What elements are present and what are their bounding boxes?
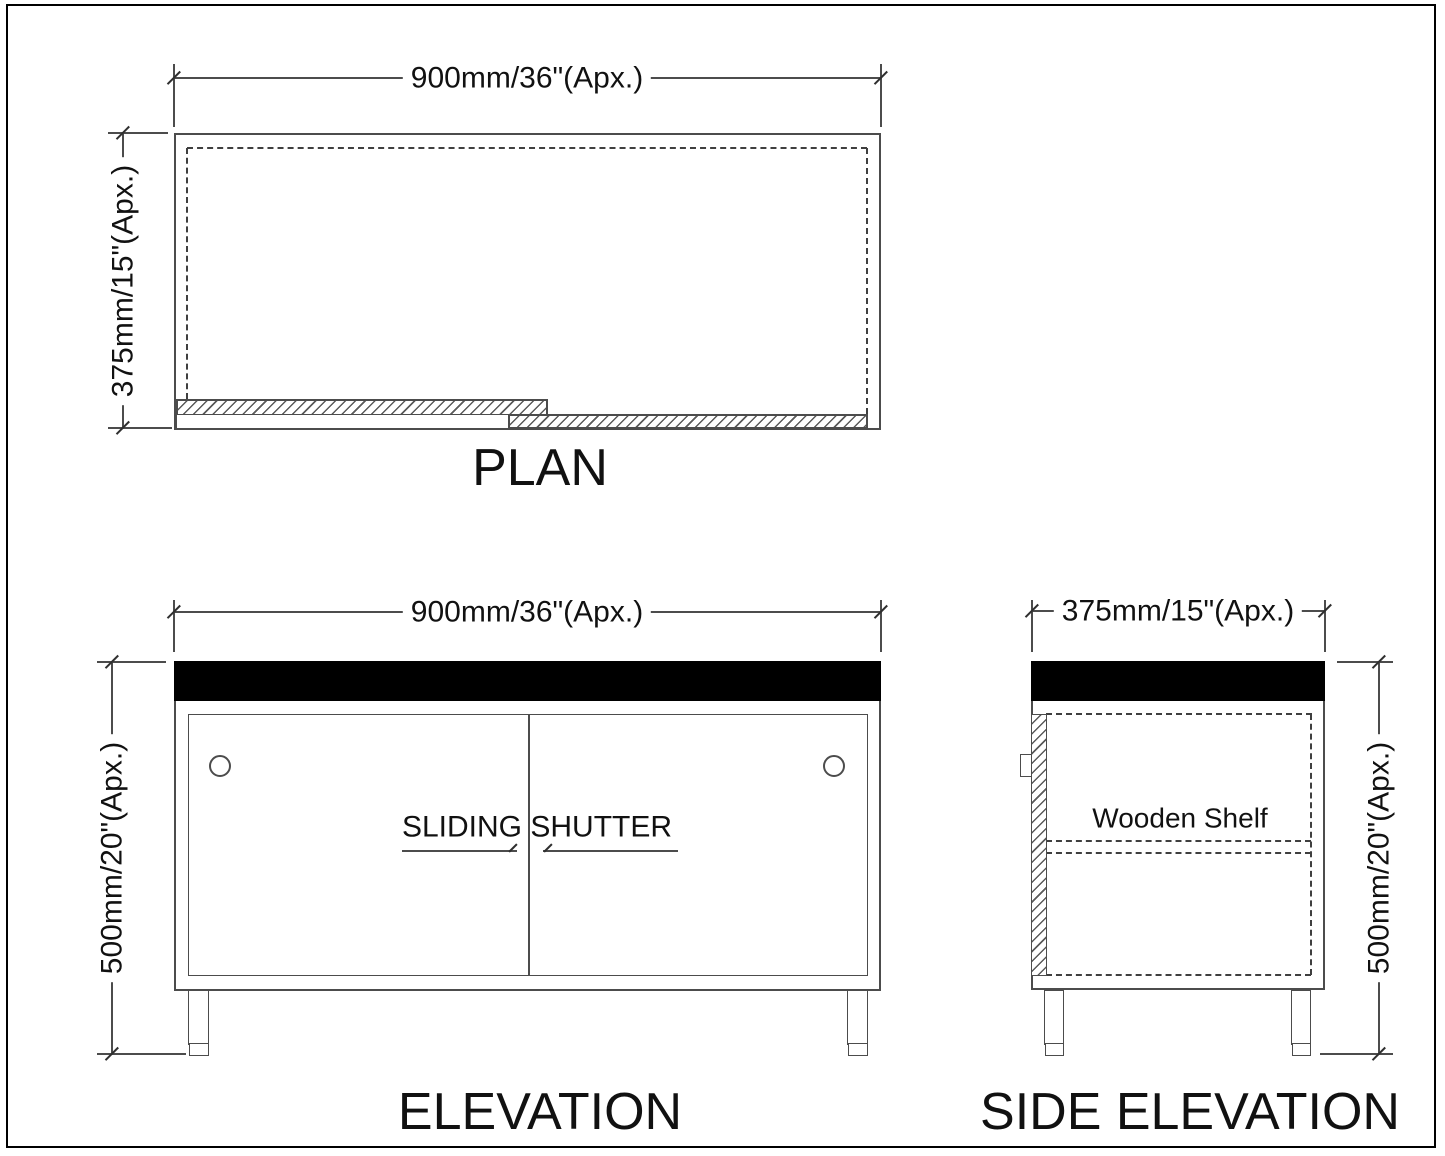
side-countertop-band — [1031, 661, 1325, 701]
plan-view-title: PLAN — [472, 442, 608, 494]
plan-depth-extension-top — [108, 132, 168, 134]
plan-depth-extension-bottom — [108, 427, 172, 429]
side-leg-right — [1291, 990, 1311, 1045]
plan-hidden-line-left — [186, 148, 188, 399]
elevation-view-title: ELEVATION — [398, 1086, 682, 1138]
side-shelf-hidden-line-upper — [1046, 840, 1311, 842]
side-height-extension-top — [1337, 661, 1393, 663]
elevation-height-dim-label: 500mm/20"(Apx.) — [96, 734, 129, 982]
plan-outer-rect — [174, 133, 881, 430]
elevation-leader-line-left — [402, 850, 517, 852]
side-leg-right-foot — [1292, 1043, 1311, 1056]
side-elevation-view-title: SIDE ELEVATION — [980, 1086, 1400, 1138]
elevation-leg-left — [188, 990, 209, 1045]
elevation-height-extension-top — [97, 661, 166, 663]
elevation-handle-left — [209, 755, 231, 777]
elevation-leg-right-foot — [848, 1043, 868, 1056]
side-hidden-line-top — [1046, 713, 1312, 715]
technical-drawing-canvas: 900mm/36"(Apx.) 375mm/15"(Apx.) PLAN 900… — [0, 0, 1445, 1156]
plan-depth-dim-label: 375mm/15"(Apx.) — [107, 157, 140, 405]
side-hidden-line-right — [1310, 714, 1312, 975]
side-hidden-line-bottom — [1046, 974, 1311, 976]
side-shutter-section-hatch — [1031, 714, 1047, 976]
plan-width-extension-left — [173, 64, 175, 127]
elevation-shutter-label: SLIDING SHUTTER — [402, 811, 672, 844]
side-height-dim-label: 500mm/20"(Apx.) — [1363, 734, 1396, 982]
plan-sliding-shutter-front-hatch — [508, 414, 868, 429]
elevation-handle-right — [823, 755, 845, 777]
elevation-leg-left-foot — [189, 1043, 209, 1056]
elevation-leader-line-right — [543, 850, 678, 852]
plan-hidden-line-back — [187, 147, 867, 149]
side-leg-left — [1044, 990, 1064, 1045]
side-height-extension-bottom — [1320, 1053, 1393, 1055]
plan-hidden-line-right — [866, 148, 868, 414]
side-leg-left-foot — [1045, 1043, 1064, 1056]
elevation-countertop-band — [174, 661, 881, 701]
side-depth-dim-label: 375mm/15"(Apx.) — [1054, 595, 1302, 628]
plan-shutter-track-empty — [176, 414, 509, 429]
plan-width-extension-right — [880, 64, 882, 127]
plan-width-dim-label: 900mm/36"(Apx.) — [403, 62, 651, 95]
elevation-door-divider — [528, 714, 530, 976]
elevation-leg-right — [847, 990, 868, 1045]
elevation-width-dim-label: 900mm/36"(Apx.) — [403, 596, 651, 629]
side-shelf-hidden-line-lower — [1046, 852, 1311, 854]
side-handle-tab — [1020, 754, 1032, 777]
side-shelf-label: Wooden Shelf — [1092, 804, 1267, 835]
